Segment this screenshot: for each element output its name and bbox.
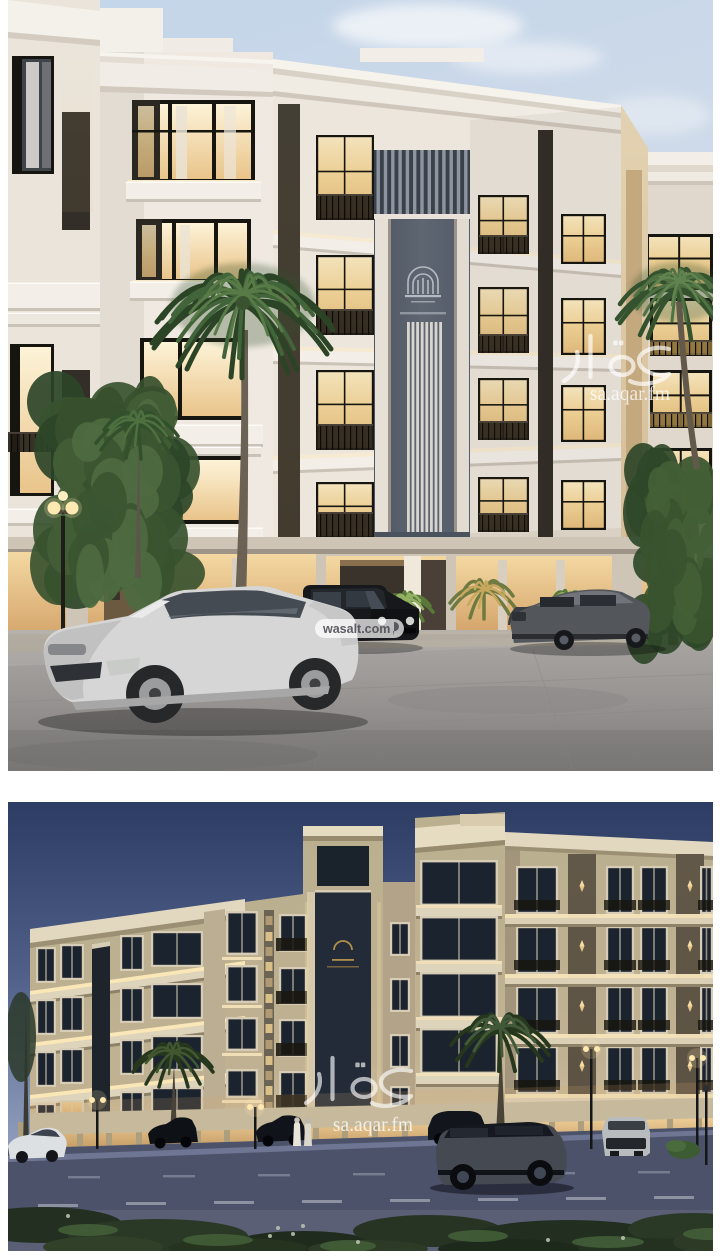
svg-text:sa.aqar.fm: sa.aqar.fm	[333, 1115, 413, 1136]
svg-text:wasalt.com: wasalt.com	[322, 622, 390, 636]
svg-text:sa.aqar.fm: sa.aqar.fm	[590, 384, 670, 405]
